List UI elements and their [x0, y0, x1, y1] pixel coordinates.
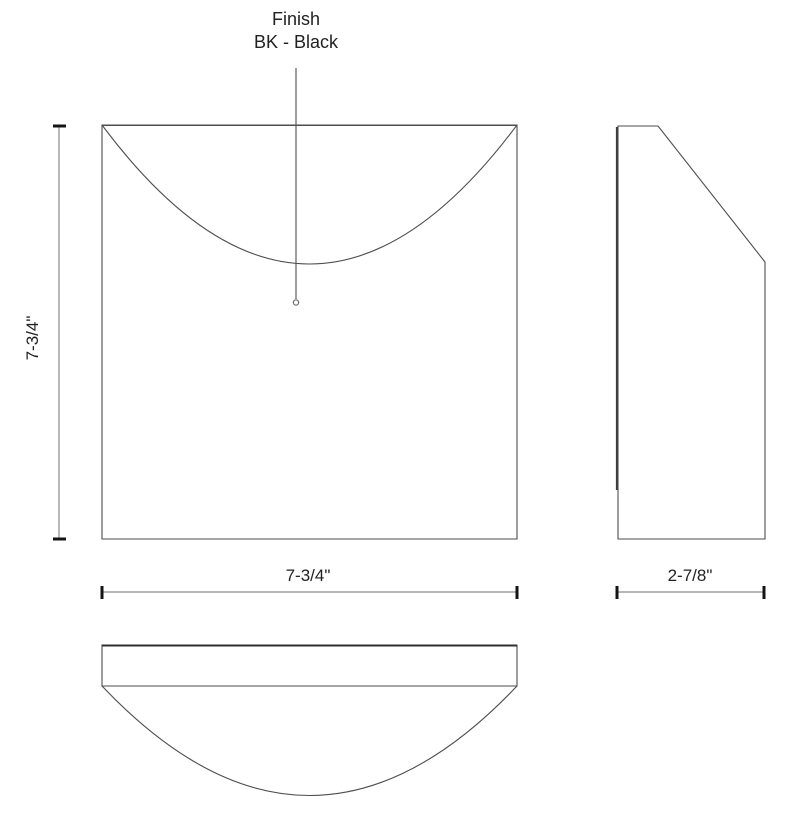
- width-dimension-label: 7-3/4": [286, 566, 331, 585]
- bottom-view-backplate: [102, 645, 517, 686]
- bottom-view: [102, 645, 517, 796]
- front-view-outline: [102, 125, 517, 539]
- side-view: [617, 126, 765, 539]
- depth-dimension-label: 2-7/8": [668, 566, 713, 585]
- front-view-shade-arc: [102, 125, 517, 264]
- finish-label-line2: BK - Black: [254, 32, 339, 52]
- height-dimension-label: 7-3/4": [23, 316, 42, 361]
- height-dimension: 7-3/4": [23, 126, 66, 539]
- bottom-view-shade-arc: [102, 686, 517, 796]
- finish-label-line1: Finish: [272, 9, 320, 29]
- technical-drawing-page: Finish BK - Black 7-3/4" 7-3/4": [0, 0, 800, 818]
- drawing-canvas: Finish BK - Black 7-3/4" 7-3/4": [0, 0, 800, 818]
- width-dimension: 7-3/4": [102, 566, 517, 599]
- finish-annotation: Finish BK - Black: [254, 9, 339, 305]
- side-view-outline: [618, 126, 765, 539]
- finish-leader-terminator: [293, 300, 298, 305]
- front-view: [102, 125, 517, 539]
- depth-dimension: 2-7/8": [617, 566, 764, 599]
